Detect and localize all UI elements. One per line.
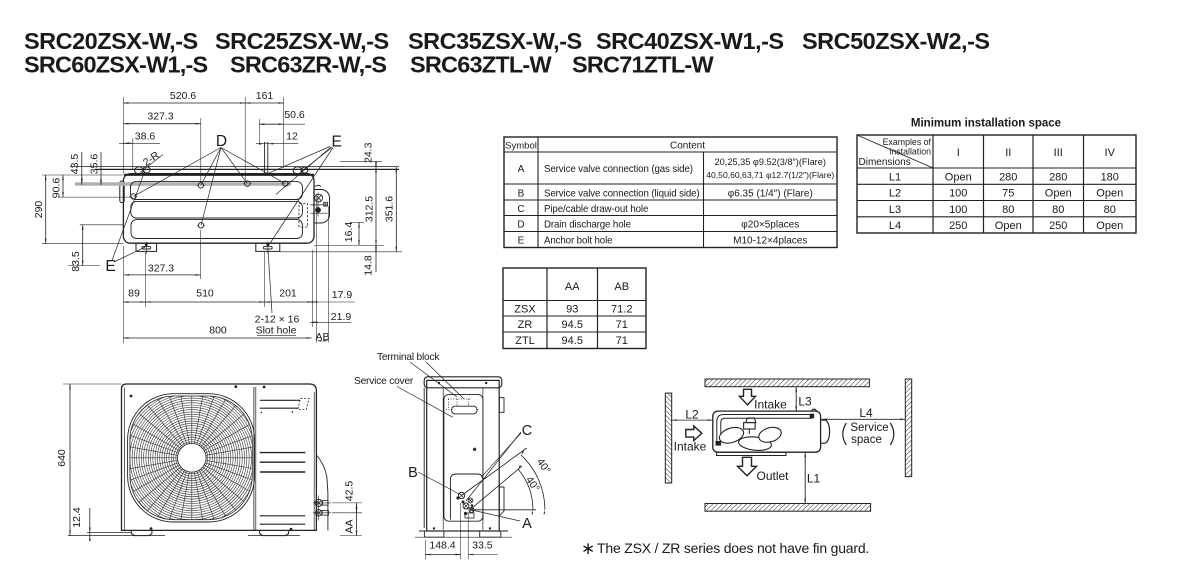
svg-text:100: 100 (949, 188, 967, 200)
svg-text:520.6: 520.6 (170, 90, 196, 102)
svg-text:24.3: 24.3 (363, 142, 375, 163)
svg-text:AB: AB (315, 331, 329, 343)
svg-text:E: E (518, 236, 525, 247)
svg-text:280: 280 (1049, 171, 1067, 183)
svg-text:100: 100 (949, 204, 967, 216)
svg-text:space: space (851, 434, 882, 446)
svg-text:Open: Open (995, 220, 1022, 232)
svg-text:14.8: 14.8 (363, 255, 375, 276)
svg-text:510: 510 (196, 288, 214, 300)
svg-text:Slot hole: Slot hole (256, 325, 297, 337)
svg-text:Intake: Intake (674, 440, 707, 454)
svg-text:42.5: 42.5 (344, 481, 356, 502)
svg-text:SRC63ZTL-W: SRC63ZTL-W (410, 52, 552, 78)
svg-text:III: III (1054, 147, 1063, 159)
svg-text:Terminal block: Terminal block (377, 352, 440, 363)
svg-text:17.9: 17.9 (332, 289, 353, 301)
svg-text:B: B (408, 465, 418, 481)
svg-text:201: 201 (279, 288, 297, 300)
svg-text:AA: AA (565, 281, 580, 293)
svg-text:IV: IV (1105, 147, 1116, 159)
svg-text:93: 93 (566, 304, 578, 316)
svg-text:312.5: 312.5 (364, 196, 376, 222)
svg-text:L2: L2 (889, 188, 901, 200)
svg-text:L1: L1 (889, 171, 901, 183)
svg-text:SRC25ZSX-W,-S: SRC25ZSX-W,-S (215, 28, 389, 54)
svg-text:AA: AA (344, 519, 356, 533)
svg-text:327.3: 327.3 (148, 263, 174, 275)
svg-text:94.5: 94.5 (562, 319, 583, 331)
svg-text:Open: Open (1096, 188, 1123, 200)
svg-text:35.6: 35.6 (88, 154, 100, 175)
svg-text:90.6: 90.6 (51, 178, 63, 199)
svg-text:161: 161 (256, 90, 274, 102)
svg-text:Content: Content (670, 141, 705, 152)
svg-text:Service valve connection (gas: Service valve connection (gas side) (544, 164, 693, 175)
svg-text:C: C (522, 423, 532, 439)
svg-text:φ6.35 (1/4″) (Flare): φ6.35 (1/4″) (Flare) (728, 189, 813, 200)
svg-text:C: C (517, 204, 524, 215)
svg-text:D: D (517, 220, 524, 231)
svg-text:Minimum installation space: Minimum installation space (911, 118, 1061, 130)
svg-text:L2: L2 (685, 407, 699, 421)
svg-text:Open: Open (1096, 220, 1123, 232)
svg-text:89: 89 (128, 288, 140, 300)
svg-text:351.6: 351.6 (384, 196, 396, 222)
svg-text:SRC40ZSX-W1,-S: SRC40ZSX-W1,-S (596, 28, 784, 54)
svg-text:Service: Service (850, 422, 888, 434)
svg-text:Intake: Intake (754, 397, 787, 411)
svg-text:L4: L4 (859, 406, 873, 420)
svg-text:SRC71ZTL-W: SRC71ZTL-W (572, 52, 714, 78)
svg-text:B: B (518, 189, 525, 200)
svg-text:Open: Open (945, 171, 972, 183)
svg-text:∗: ∗ (581, 539, 595, 558)
svg-text:installation: installation (889, 147, 931, 157)
svg-text:L4: L4 (889, 220, 901, 232)
svg-text:L1: L1 (807, 472, 821, 486)
svg-text:33.5: 33.5 (472, 539, 493, 551)
svg-text:80: 80 (1052, 204, 1064, 216)
svg-text:250: 250 (1049, 220, 1067, 232)
svg-text:The ZSX / ZR series does not h: The ZSX / ZR series does not have fin gu… (597, 540, 869, 556)
svg-text:290: 290 (33, 201, 45, 219)
svg-text:Pipe/cable draw-out hole: Pipe/cable draw-out hole (544, 204, 648, 215)
svg-text:80: 80 (1104, 204, 1116, 216)
svg-text:L3: L3 (798, 395, 812, 409)
svg-text:Drain discharge hole: Drain discharge hole (544, 220, 631, 231)
svg-text:327.3: 327.3 (147, 111, 173, 123)
svg-text:L3: L3 (889, 204, 901, 216)
svg-text:SRC20ZSX-W,-S: SRC20ZSX-W,-S (24, 28, 198, 54)
svg-text:12: 12 (286, 131, 298, 143)
svg-text:Symbol: Symbol (505, 141, 537, 152)
svg-text:71.2: 71.2 (611, 304, 632, 316)
svg-text:Service cover: Service cover (354, 376, 414, 387)
svg-text:SRC50ZSX-W2,-S: SRC50ZSX-W2,-S (802, 28, 990, 54)
svg-text:148.4: 148.4 (429, 539, 455, 551)
svg-text:SRC60ZSX-W1,-S: SRC60ZSX-W1,-S (24, 52, 207, 78)
svg-text:43.5: 43.5 (69, 154, 81, 175)
svg-text:ZR: ZR (518, 319, 533, 331)
svg-text:40,50,60,63,71 φ12.7(1/2″)(Fla: 40,50,60,63,71 φ12.7(1/2″)(Flare) (706, 170, 834, 180)
svg-text:800: 800 (209, 325, 227, 337)
svg-text:280: 280 (999, 171, 1017, 183)
svg-text:94.5: 94.5 (562, 335, 583, 347)
svg-text:I: I (957, 147, 960, 159)
svg-text:Examples of: Examples of (883, 137, 932, 147)
svg-text:SRC35ZSX-W,-S: SRC35ZSX-W,-S (408, 28, 582, 54)
svg-text:38.6: 38.6 (135, 130, 156, 142)
svg-text:250: 250 (949, 220, 967, 232)
svg-text:80: 80 (1002, 204, 1014, 216)
svg-text:A: A (518, 164, 525, 175)
svg-text:71: 71 (616, 319, 628, 331)
svg-text:ZSX: ZSX (514, 304, 536, 316)
svg-text:640: 640 (56, 449, 68, 467)
svg-text:12.4: 12.4 (71, 507, 83, 528)
svg-text:21.9: 21.9 (331, 311, 352, 323)
svg-text:Dimensions: Dimensions (859, 157, 911, 168)
svg-text:E: E (105, 258, 115, 275)
svg-text:Outlet: Outlet (756, 469, 789, 483)
svg-text:16.4: 16.4 (343, 222, 355, 243)
svg-text:71: 71 (616, 335, 628, 347)
svg-text:Open: Open (1045, 188, 1072, 200)
svg-text:A: A (522, 516, 532, 532)
svg-text:SRC63ZR-W,-S: SRC63ZR-W,-S (230, 52, 386, 78)
svg-text:Service valve connection (liqu: Service valve connection (liquid side) (544, 189, 700, 200)
svg-text:20,25,35 φ9.52(3/8″)(Flare): 20,25,35 φ9.52(3/8″)(Flare) (715, 157, 826, 167)
svg-text:II: II (1005, 147, 1011, 159)
svg-text:φ20×5places: φ20×5places (741, 220, 799, 231)
svg-text:180: 180 (1101, 171, 1119, 183)
svg-text:Anchor bolt hole: Anchor bolt hole (544, 236, 612, 247)
svg-text:AB: AB (614, 281, 629, 293)
svg-text:ZTL: ZTL (515, 335, 535, 347)
svg-text:50.6: 50.6 (284, 109, 305, 121)
svg-text:M10-12×4places: M10-12×4places (733, 236, 807, 247)
svg-text:83.5: 83.5 (70, 251, 82, 272)
svg-text:75: 75 (1002, 188, 1014, 200)
